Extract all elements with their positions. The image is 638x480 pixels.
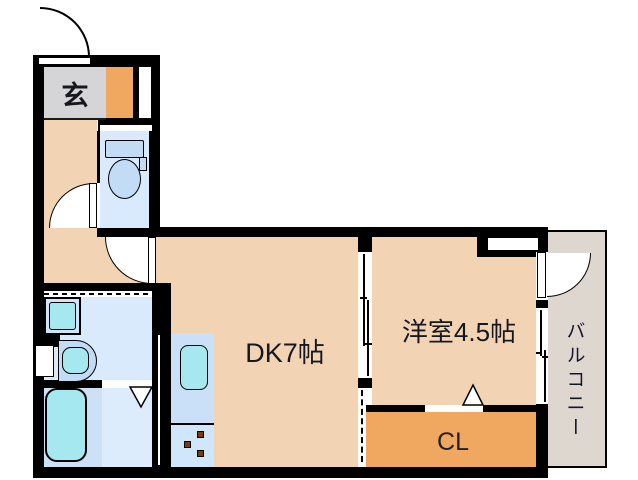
bathtub (45, 388, 87, 462)
toilet-door (89, 183, 97, 228)
sliding-door-panel (367, 300, 369, 376)
toilet-tank (105, 140, 144, 158)
wall-washroom-north (44, 283, 152, 291)
kitchen-stove (171, 423, 214, 468)
entrance-door (38, 57, 91, 65)
washing-machine (49, 302, 76, 330)
closet-label: CL (393, 427, 513, 457)
balcony-label: バルコニー (553, 305, 595, 457)
dk-label: DK7帖 (205, 334, 365, 366)
pipe-space (139, 67, 151, 118)
kitchen-sink (180, 345, 208, 390)
wall-mid-vertical (152, 283, 171, 467)
toilet-flush-handle (139, 157, 147, 171)
wall-south (33, 467, 548, 478)
wall-toilet-west (97, 131, 100, 183)
shoe-cabinet (106, 67, 133, 118)
entrance-door-swing (40, 7, 90, 57)
wall-toilet-south (97, 228, 160, 237)
wash-basin-bowl (62, 347, 89, 374)
stove-burner (197, 450, 204, 457)
stove-burner (184, 441, 191, 448)
closet-dashed-boundary (361, 390, 363, 462)
wall-west (33, 55, 44, 478)
wall-partition-chunk (358, 378, 372, 388)
toilet-top-opening (100, 125, 152, 131)
genkan-label: 玄 (44, 67, 106, 120)
western-room-label: 洋室4.5帖 (379, 314, 539, 346)
sliding-door-panel (363, 254, 365, 346)
west-window (35, 345, 54, 377)
east-window-tick (536, 352, 542, 354)
wall-partition-stub (358, 237, 372, 252)
closet-door-triangle (461, 384, 485, 407)
toilet-bowl (108, 159, 141, 199)
east-window-tick (542, 356, 548, 358)
stove-burner (197, 431, 204, 438)
sliding-door-tick (365, 343, 372, 345)
east-window-pane-line (540, 310, 542, 356)
north-window (487, 237, 539, 251)
sliding-door-tick (360, 297, 367, 299)
balcony-door (537, 252, 546, 298)
kitchen-edge-line (158, 335, 160, 465)
bath-door-triangle (129, 386, 153, 409)
hall-door (148, 237, 156, 284)
floor-plan: 玄 DK7帖 洋室4.5帖 CL バルコニー (0, 0, 638, 480)
